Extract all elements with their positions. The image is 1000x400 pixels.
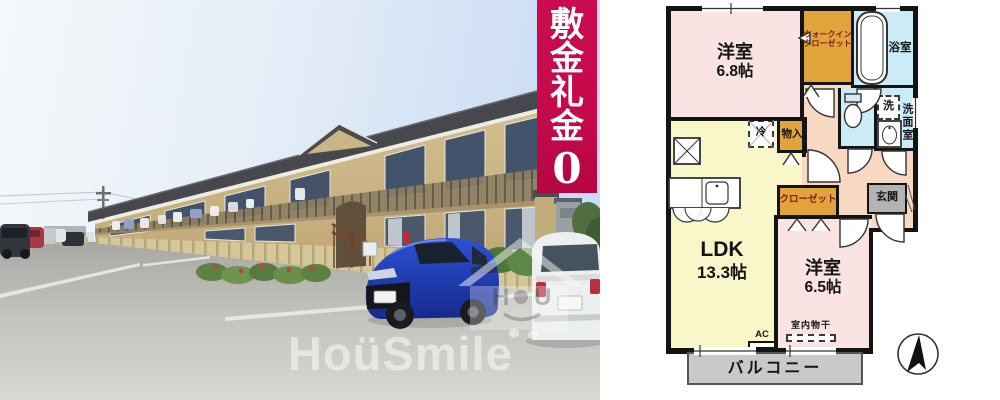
bedroom-a-area: 6.8帖: [666, 63, 804, 81]
label-indoor-drying: 室内物干: [781, 320, 841, 331]
compass-icon: [898, 334, 938, 374]
bedroom-a-name: 洋室: [666, 42, 804, 63]
bedroom-b-name: 洋室: [774, 258, 872, 279]
label-balcony: バルコニー: [687, 360, 863, 379]
label-entrance: 玄関: [867, 191, 907, 204]
bathtub-icon: [857, 12, 887, 84]
ldk-name: LDK: [666, 238, 778, 263]
label-walkin-closet: ウォークイン クローゼット: [801, 30, 854, 49]
sink-icon: [878, 121, 901, 147]
ldk-area: 13.3帖: [666, 263, 778, 283]
label-bedroom-a: 洋室 6.8帖: [666, 42, 804, 82]
label-washroom: 洗面室: [900, 95, 913, 149]
label-ac: AC: [748, 329, 776, 340]
plan-symbols: [0, 0, 1000, 400]
label-storage: 物入: [777, 128, 807, 140]
label-ldk: LDK 13.3帖: [666, 238, 778, 283]
label-closet: クローゼット: [777, 194, 839, 205]
kitchen-counter-icon: [669, 178, 740, 222]
label-bath: 浴室: [886, 42, 914, 56]
label-washer: 洗: [877, 100, 900, 113]
floorplan: 洋室 6.8帖 ウォークイン クローゼット 浴室 洗 洗面室 冷 物入 クローゼ…: [0, 0, 1000, 400]
bedroom-b-area: 6.5帖: [774, 279, 872, 297]
shaft-icon: [674, 138, 700, 164]
toilet-icon: [845, 94, 862, 128]
label-bedroom-b: 洋室 6.5帖: [774, 258, 872, 298]
label-fridge: 冷: [748, 126, 774, 138]
walkin-line2: クローゼット: [801, 39, 854, 48]
